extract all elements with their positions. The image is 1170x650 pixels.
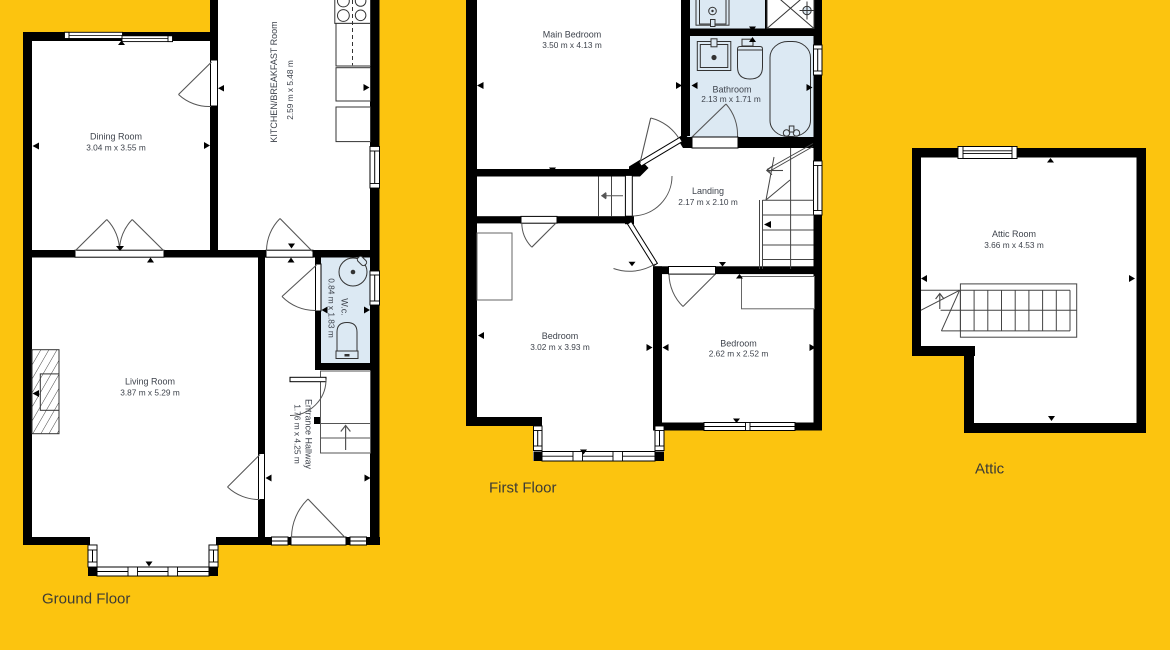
svg-text:Bedroom: Bedroom: [542, 331, 579, 341]
svg-text:3.50 m x 4.13 m: 3.50 m x 4.13 m: [542, 40, 602, 50]
svg-text:KITCHEN/BREAKFAST Room: KITCHEN/BREAKFAST Room: [269, 21, 279, 142]
svg-text:Entrance Hallway: Entrance Hallway: [304, 399, 314, 470]
svg-text:2.62 m x 2.52 m: 2.62 m x 2.52 m: [709, 349, 769, 359]
svg-text:Bedroom: Bedroom: [720, 339, 757, 349]
svg-text:0.84 m x 1.83 m: 0.84 m x 1.83 m: [327, 278, 337, 338]
svg-text:Living Room: Living Room: [125, 377, 175, 387]
svg-text:W.c.: W.c.: [340, 298, 350, 316]
svg-text:Landing: Landing: [692, 186, 724, 196]
svg-text:2.17 m x 2.10 m: 2.17 m x 2.10 m: [678, 197, 738, 207]
svg-text:Attic Room: Attic Room: [992, 229, 1036, 239]
svg-text:3.02 m x 3.93 m: 3.02 m x 3.93 m: [530, 342, 590, 352]
svg-text:Main Bedroom: Main Bedroom: [543, 30, 602, 40]
svg-text:1.76 m x 4.25 m: 1.76 m x 4.25 m: [293, 404, 303, 464]
svg-text:First Floor: First Floor: [489, 480, 557, 497]
svg-text:Ground Floor: Ground Floor: [42, 591, 130, 608]
svg-text:Dining Room: Dining Room: [90, 132, 142, 142]
svg-text:2.13 m x 1.71 m: 2.13 m x 1.71 m: [701, 94, 761, 104]
svg-text:Bathroom: Bathroom: [712, 85, 751, 95]
svg-text:Attic: Attic: [975, 461, 1005, 478]
svg-text:3.04 m x 3.55 m: 3.04 m x 3.55 m: [86, 143, 146, 153]
svg-text:3.66 m x 4.53 m: 3.66 m x 4.53 m: [984, 240, 1044, 250]
svg-text:2.59 m x 5.48 m: 2.59 m x 5.48 m: [285, 60, 295, 120]
svg-text:3.87 m x 5.29 m: 3.87 m x 5.29 m: [120, 388, 180, 398]
